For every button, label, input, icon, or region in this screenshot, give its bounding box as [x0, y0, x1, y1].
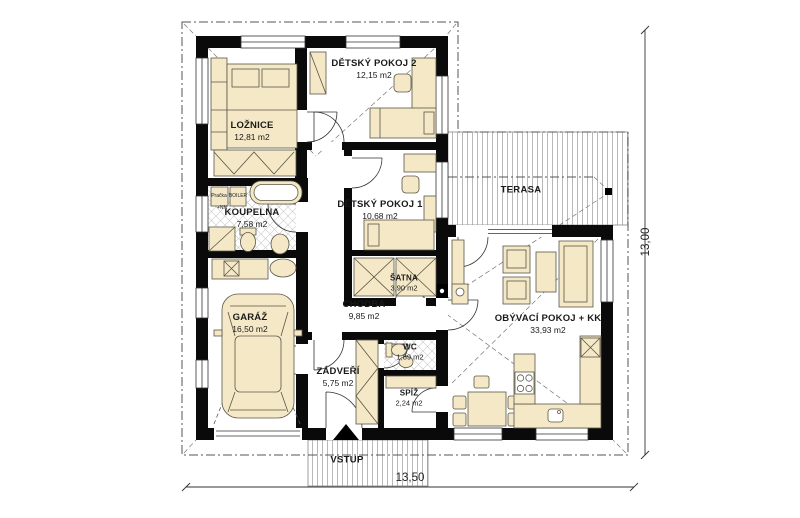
height-dimension-label: 13,00: [640, 228, 652, 257]
kitchen-counter: [514, 336, 601, 428]
room-label-obyvaci-pokoj: OBÝVACÍ POKOJ + KK 33,93 m2: [495, 313, 602, 336]
roof-point-marker: [605, 188, 612, 195]
room-name: ZÁDVEŘÍ: [316, 366, 359, 378]
room-label-detsky-pokoj-1: DĚTSKÝ POKOJ 1 10,68 m2: [337, 199, 422, 222]
room-area: 12,81 m2: [230, 132, 273, 143]
terrace-pad: [448, 132, 628, 225]
room-name: SPÍŽ: [395, 388, 422, 398]
boiler-label: BOILER: [229, 193, 247, 199]
room-area: 12,15 m2: [331, 70, 416, 81]
width-dimension-label: 13,50: [396, 472, 425, 484]
electrical-note: +NN: [217, 205, 227, 211]
room-area: 10,68 m2: [337, 211, 422, 222]
room-name: OBÝVACÍ POKOJ + KK: [495, 313, 602, 325]
room-name: DĚTSKÝ POKOJ 1: [337, 199, 422, 211]
room-label-koupelna: KOUPELNA 7,58 m2: [225, 207, 280, 230]
bedroom-furniture: [211, 58, 297, 176]
room-label-chodba: CHODBA 9,85 m2: [343, 299, 386, 322]
room-label-wc: WC 1,89 m2: [396, 342, 423, 361]
room-area: 2,24 m2: [395, 398, 422, 407]
room-name: GARÁŽ: [232, 312, 267, 324]
floor-plan: LOŽNICE 12,81 m2 DĚTSKÝ POKOJ 2 12,15 m2…: [0, 0, 800, 518]
room-area: 33,93 m2: [495, 325, 602, 336]
room-label-satna: ŠATNA 3,90 m2: [390, 273, 418, 292]
room-area: 3,90 m2: [390, 283, 418, 292]
room-area: 1,89 m2: [396, 352, 423, 361]
room-area: 7,58 m2: [225, 219, 280, 230]
room-area: 16,50 m2: [232, 324, 267, 335]
room-label-spiz: SPÍŽ 2,24 m2: [395, 388, 422, 407]
room-name: DĚTSKÝ POKOJ 2: [331, 58, 416, 70]
room-name: KOUPELNA: [225, 207, 280, 219]
washer-label: Pračka: [211, 193, 227, 199]
room-name: LOŽNICE: [230, 120, 273, 132]
entrance-label: VSTUP: [330, 455, 363, 466]
room-label-detsky-pokoj-2: DĚTSKÝ POKOJ 2 12,15 m2: [331, 58, 416, 81]
chimney: [436, 284, 448, 298]
room-name: ŠATNA: [390, 273, 418, 283]
room-area: 9,85 m2: [343, 311, 386, 322]
room-label-garaz: GARÁŽ 16,50 m2: [232, 312, 267, 335]
garage-furniture: [212, 259, 296, 279]
pantry-shelf: [386, 376, 436, 388]
room-label-loznice: LOŽNICE 12,81 m2: [230, 120, 273, 143]
terrace-label: TERASA: [501, 185, 542, 196]
room-name: CHODBA: [343, 299, 386, 311]
room-label-zadveri: ZÁDVEŘÍ 5,75 m2: [316, 366, 359, 389]
room-area: 5,75 m2: [316, 378, 359, 389]
room-name: WC: [396, 342, 423, 352]
